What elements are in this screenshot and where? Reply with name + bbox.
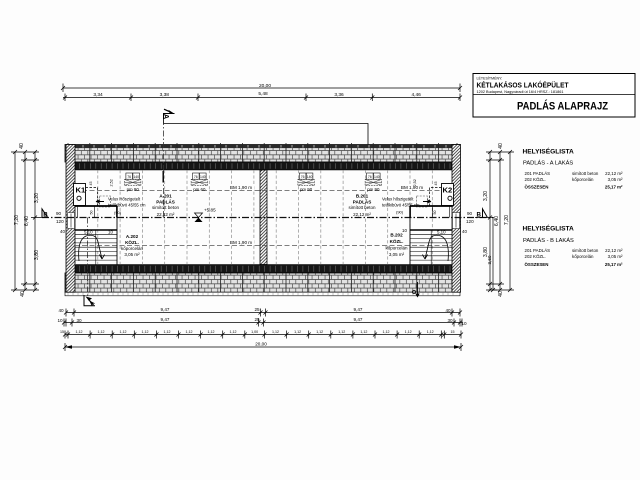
svg-text:140: 140 <box>374 175 380 179</box>
svg-text:1,12: 1,12 <box>76 330 83 334</box>
svg-text:50: 50 <box>433 211 437 215</box>
svg-text:40: 40 <box>498 143 504 149</box>
svg-text:1,12: 1,12 <box>186 330 193 334</box>
svg-text:3,05 m²: 3,05 m² <box>608 177 623 182</box>
svg-text:9,47: 9,47 <box>161 307 170 312</box>
svg-text:201 PADLÁS: 201 PADLÁS <box>525 248 551 253</box>
svg-text:K1: K1 <box>76 186 86 195</box>
svg-text:22,12 m²: 22,12 m² <box>605 248 623 253</box>
svg-text:B.201: B.201 <box>356 194 369 199</box>
svg-text:3,38: 3,38 <box>160 92 170 98</box>
svg-text:PADLÁS - B LAKÁS: PADLÁS - B LAKÁS <box>523 237 574 244</box>
svg-text:5,10: 5,10 <box>437 230 446 235</box>
svg-text:90: 90 <box>467 211 473 216</box>
svg-text:20,00: 20,00 <box>259 83 271 89</box>
svg-text:ÖSSZESEN: ÖSSZESEN <box>525 185 549 190</box>
svg-text:25: 25 <box>254 307 260 312</box>
svg-text:kőporcelán: kőporcelán <box>572 254 594 259</box>
svg-text:kőporcelán: kőporcelán <box>385 246 408 251</box>
svg-text:22,12 m²: 22,12 m² <box>157 212 175 217</box>
svg-text:7,20: 7,20 <box>14 215 20 225</box>
svg-text:140: 140 <box>133 175 139 179</box>
svg-text:10: 10 <box>57 318 63 323</box>
svg-text:10: 10 <box>108 230 113 235</box>
svg-text:1,12: 1,12 <box>405 330 412 334</box>
svg-text:40: 40 <box>445 308 451 313</box>
svg-text:201 PADLÁS: 201 PADLÁS <box>525 171 551 176</box>
svg-text:HELYISÉGLISTA: HELYISÉGLISTA <box>523 224 575 233</box>
svg-text:PADLÁS - A LAKÁS: PADLÁS - A LAKÁS <box>523 160 573 167</box>
svg-text:40: 40 <box>20 291 26 297</box>
svg-text:KÖZL.: KÖZL. <box>125 239 139 245</box>
svg-text:1,12: 1,12 <box>427 330 434 334</box>
svg-text:A.201: A.201 <box>159 194 172 199</box>
svg-text:76: 76 <box>301 175 305 179</box>
svg-text:pm 90: pm 90 <box>367 187 380 192</box>
svg-text:1,12: 1,12 <box>120 330 127 334</box>
svg-text:20,00: 20,00 <box>255 342 267 347</box>
svg-text:1,00: 1,00 <box>251 330 258 334</box>
svg-text:1202 Budapest, Nagyváradi út 1: 1202 Budapest, Nagyváradi út 16/4 HRSZ.:… <box>477 89 564 94</box>
svg-text:kőporcelán: kőporcelán <box>121 246 144 251</box>
svg-text:120: 120 <box>56 219 64 224</box>
svg-text:Velux Hőszigetelt: Velux Hőszigetelt <box>108 197 141 202</box>
svg-text:1,12: 1,12 <box>294 330 301 334</box>
svg-text:3,05 m²: 3,05 m² <box>124 252 140 257</box>
svg-text:90: 90 <box>56 211 62 216</box>
svg-text:4,46: 4,46 <box>412 92 422 98</box>
svg-text:140: 140 <box>307 175 313 179</box>
svg-text:6,40: 6,40 <box>24 216 30 226</box>
svg-text:BM 1,90 m: BM 1,90 m <box>230 240 252 245</box>
svg-text:PADLÁS ALAPRAJZ: PADLÁS ALAPRAJZ <box>517 100 608 113</box>
svg-text:B.202: B.202 <box>390 233 403 238</box>
svg-text:1,12: 1,12 <box>164 330 171 334</box>
svg-text:LÉTESÍTMÉNY:: LÉTESÍTMÉNY: <box>477 76 503 81</box>
svg-text:1,12: 1,12 <box>316 330 323 334</box>
svg-text:7,20: 7,20 <box>504 215 510 225</box>
svg-text:1,12: 1,12 <box>383 330 390 334</box>
svg-text:simított beton: simított beton <box>572 171 599 176</box>
svg-text:40: 40 <box>58 308 64 313</box>
svg-text:25,17 m²: 25,17 m² <box>605 185 623 190</box>
svg-text:(90): (90) <box>396 210 404 215</box>
svg-text:A: A <box>162 114 169 119</box>
svg-text:76: 76 <box>127 175 131 179</box>
svg-text:25: 25 <box>254 317 260 322</box>
svg-text:40: 40 <box>60 229 65 234</box>
svg-text:45: 45 <box>89 182 93 186</box>
svg-text:K2: K2 <box>443 186 453 195</box>
svg-text:3,34: 3,34 <box>93 92 103 98</box>
svg-text:PADLÁS: PADLÁS <box>156 199 175 205</box>
svg-text:Velux hőszigetelt: Velux hőszigetelt <box>382 197 414 202</box>
svg-text:3,05 m²: 3,05 m² <box>389 252 405 257</box>
svg-text:+5,85: +5,85 <box>204 208 216 213</box>
svg-text:1,12: 1,12 <box>98 330 105 334</box>
svg-text:simított beton: simított beton <box>348 205 376 210</box>
svg-text:pm 90: pm 90 <box>127 187 140 192</box>
svg-text:30: 30 <box>76 318 82 323</box>
svg-text:kőporcelán: kőporcelán <box>572 177 594 182</box>
svg-text:10: 10 <box>402 228 407 233</box>
svg-text:15: 15 <box>60 330 64 334</box>
svg-text:30: 30 <box>447 318 453 323</box>
svg-text:5,48: 5,48 <box>258 91 268 97</box>
svg-text:1,12: 1,12 <box>208 330 215 334</box>
svg-text:3,80: 3,80 <box>34 250 40 260</box>
svg-text:50: 50 <box>90 211 94 215</box>
svg-text:22,12 m²: 22,12 m² <box>353 212 371 217</box>
svg-text:202 KÖZL.: 202 KÖZL. <box>525 254 546 259</box>
svg-text:BM 1,90 m: BM 1,90 m <box>230 185 252 190</box>
svg-text:ÖSSZESEN: ÖSSZESEN <box>525 262 549 267</box>
svg-text:40: 40 <box>498 291 504 297</box>
svg-text:3,36: 3,36 <box>334 92 344 98</box>
svg-text:pm 60: pm 60 <box>193 187 206 192</box>
svg-text:simított beton: simított beton <box>572 248 599 253</box>
svg-text:1,12: 1,12 <box>272 330 279 334</box>
svg-text:15: 15 <box>451 330 455 334</box>
svg-text:A.202: A.202 <box>126 234 139 239</box>
svg-text:3,20: 3,20 <box>483 191 489 201</box>
svg-text:9,47: 9,47 <box>161 317 170 322</box>
svg-text:202 KÖZL.: 202 KÖZL. <box>525 177 546 182</box>
svg-text:3,20: 3,20 <box>34 193 40 203</box>
svg-text:6,40: 6,40 <box>494 216 500 226</box>
svg-text:(90): (90) <box>114 210 122 215</box>
svg-text:1,12: 1,12 <box>360 330 367 334</box>
svg-text:76: 76 <box>368 175 372 179</box>
svg-text:22,12 m²: 22,12 m² <box>605 171 623 176</box>
svg-text:1,12: 1,12 <box>338 330 345 334</box>
svg-text:1,12: 1,12 <box>230 330 237 334</box>
svg-text:simított beton: simított beton <box>152 205 180 210</box>
svg-text:140: 140 <box>200 175 206 179</box>
svg-text:KÖZL.: KÖZL. <box>390 238 404 244</box>
svg-text:76: 76 <box>194 175 198 179</box>
svg-text:3,05 m²: 3,05 m² <box>608 254 623 259</box>
svg-text:25,17 m²: 25,17 m² <box>605 262 623 267</box>
svg-text:120: 120 <box>466 219 474 224</box>
svg-text:40: 40 <box>19 143 25 149</box>
svg-text:HELYISÉGLISTA: HELYISÉGLISTA <box>523 147 575 156</box>
svg-text:2,52: 2,52 <box>413 179 417 186</box>
svg-text:9,47: 9,47 <box>354 307 363 312</box>
svg-text:3,60: 3,60 <box>487 255 492 264</box>
svg-text:10: 10 <box>461 321 467 326</box>
svg-text:PADLÁS: PADLÁS <box>353 199 372 205</box>
svg-text:pm 90: pm 90 <box>300 187 313 192</box>
svg-text:2,52: 2,52 <box>110 179 114 186</box>
svg-text:9,47: 9,47 <box>354 317 363 322</box>
svg-text:45: 45 <box>434 182 438 186</box>
svg-text:40: 40 <box>462 229 467 234</box>
svg-text:5,10: 5,10 <box>84 230 93 235</box>
svg-text:1,12: 1,12 <box>142 330 149 334</box>
